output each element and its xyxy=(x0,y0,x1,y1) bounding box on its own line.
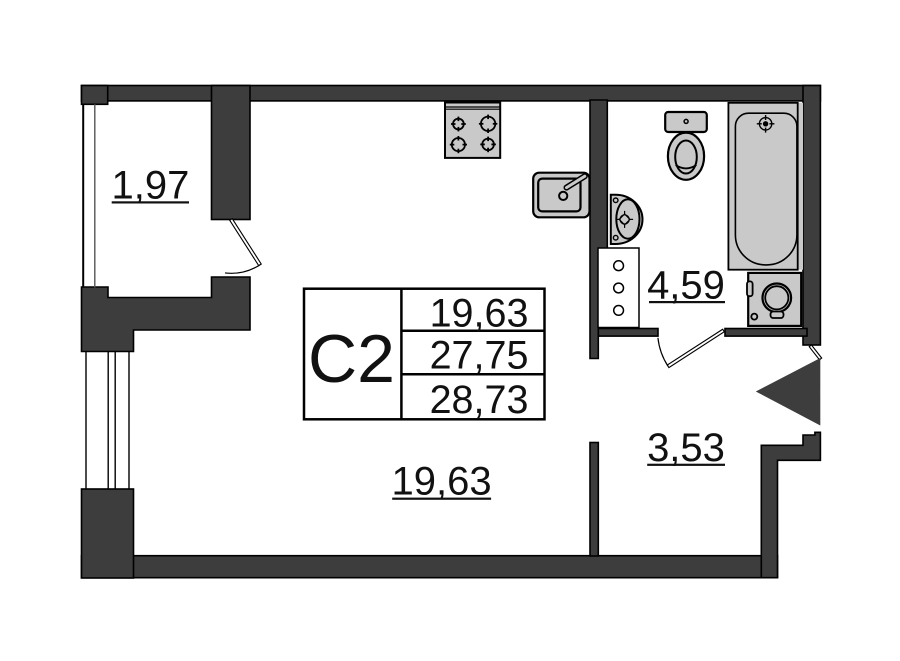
svg-text:4,59: 4,59 xyxy=(647,263,725,307)
svg-text:27,75: 27,75 xyxy=(430,334,529,378)
svg-text:28,73: 28,73 xyxy=(430,378,529,422)
svg-text:1,97: 1,97 xyxy=(111,163,189,207)
svg-text:С2: С2 xyxy=(308,321,395,397)
svg-text:19,63: 19,63 xyxy=(430,292,529,336)
svg-text:3,53: 3,53 xyxy=(647,426,725,470)
svg-text:19,63: 19,63 xyxy=(392,459,492,503)
